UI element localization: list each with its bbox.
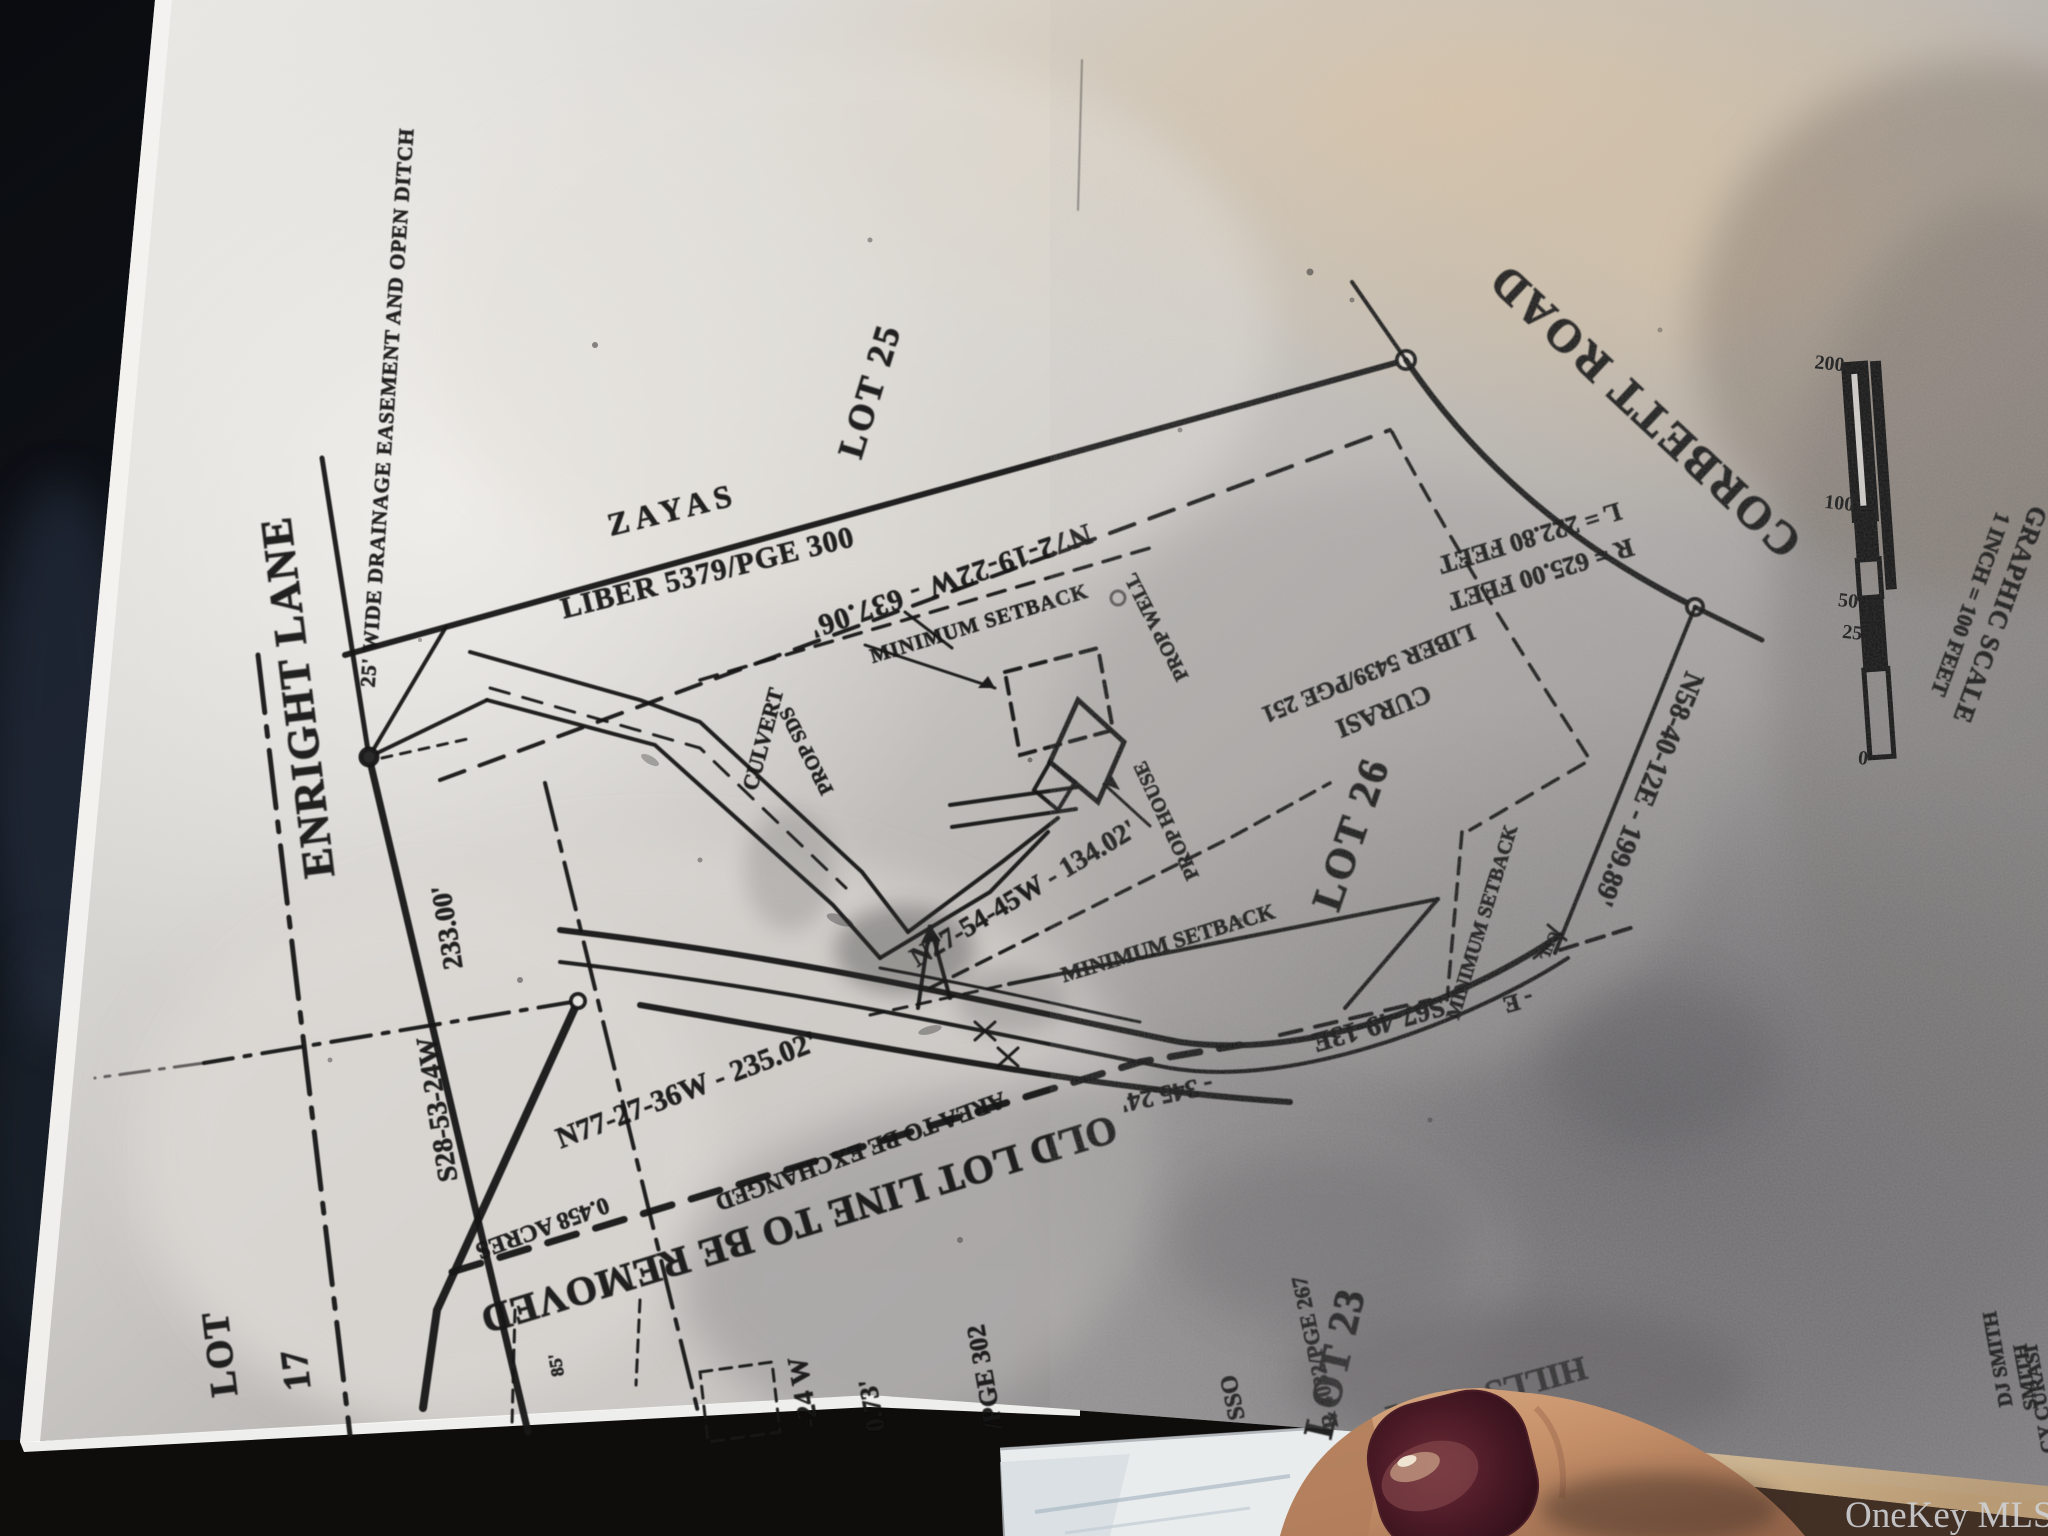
svg-text:OneKey MLS: OneKey MLS bbox=[1845, 1495, 2048, 1536]
svg-text:85': 85' bbox=[544, 1352, 568, 1378]
svg-text:17: 17 bbox=[273, 1346, 320, 1393]
